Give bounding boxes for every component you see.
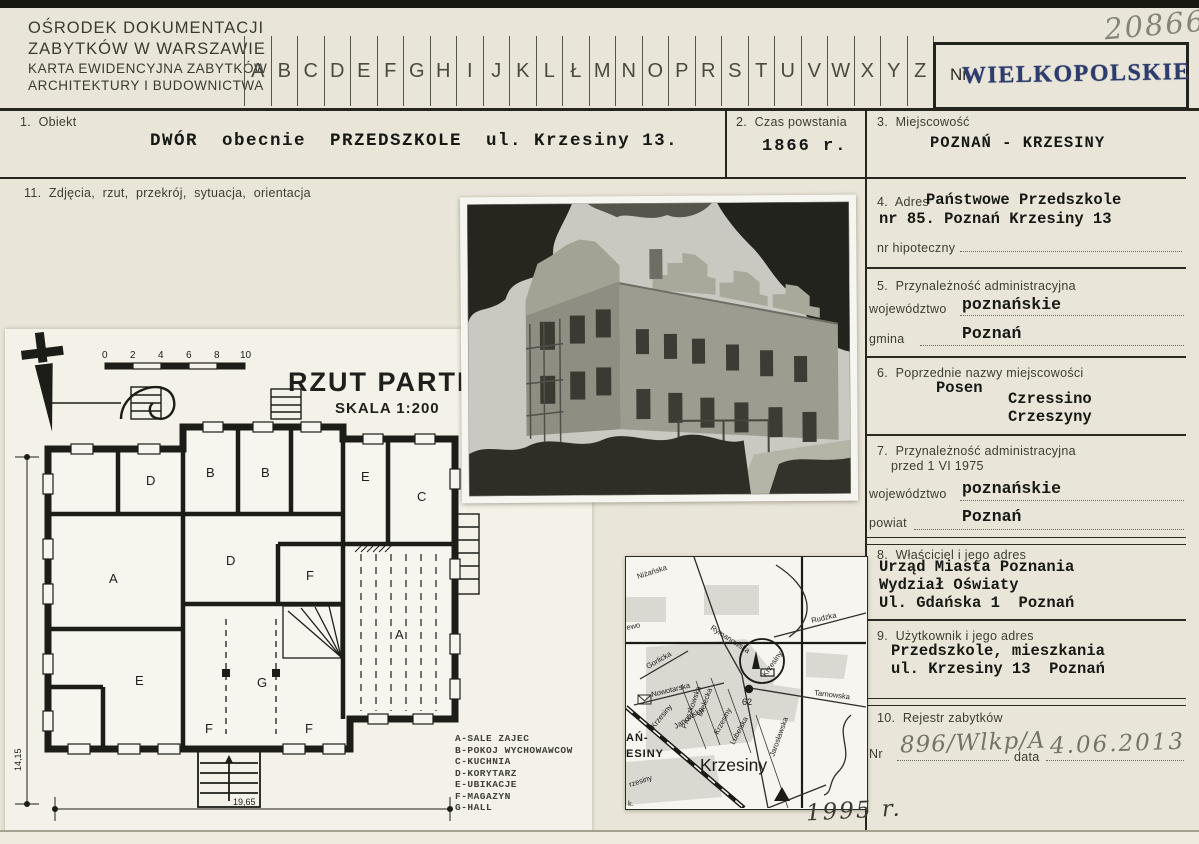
field3-label: 3. Miejscowość xyxy=(877,115,970,129)
svg-text:6: 6 xyxy=(186,350,192,361)
alphabet-letter: U xyxy=(774,36,801,106)
field5-row1-value: poznańskie xyxy=(962,295,1061,314)
building-photo-image xyxy=(467,202,851,497)
plan-legend-line: G-HALL xyxy=(455,802,573,814)
svg-text:4: 4 xyxy=(158,350,164,361)
alphabet-index: ABCDEFGHIJKLŁMNOPRSTUVWXYZ xyxy=(244,36,934,106)
alphabet-letter: E xyxy=(350,36,377,106)
field4-value-line1: Państwowe Przedszkole xyxy=(926,191,1121,209)
alphabet-letter: A xyxy=(244,36,271,106)
alphabet-letter: T xyxy=(748,36,775,106)
map-partial-line2: ESINY xyxy=(626,748,664,760)
card-type-line: KARTA EWIDENCYJNA ZABYTKÓW xyxy=(28,60,267,77)
field6-value2: Czressino xyxy=(1008,390,1092,408)
field5-label: 5. Przynależność administracyjna xyxy=(877,279,1076,293)
alphabet-letter: K xyxy=(509,36,536,106)
card-type-line: ARCHITEKTURY I BUDOWNICTWA xyxy=(28,77,267,94)
field6-value1: Posen xyxy=(936,379,983,397)
svg-text:C: C xyxy=(417,489,426,504)
alphabet-letter: F xyxy=(377,36,404,106)
dotted-line xyxy=(1046,759,1184,761)
field6-label: 6. Poprzednie nazwy miejscowości xyxy=(877,366,1084,380)
field4-value-line2: nr 85. Poznań Krzesiny 13 xyxy=(879,210,1112,228)
alphabet-letter: C xyxy=(297,36,324,106)
field10-nr-label: Nr xyxy=(869,747,883,761)
location-map-image: Niżańska ewo Gorlicka Rymanowska Krzesin… xyxy=(626,557,866,808)
alphabet-letter: I xyxy=(456,36,483,106)
svg-text:2: 2 xyxy=(130,350,136,361)
svg-text:B: B xyxy=(206,465,215,480)
field7-label-line1: 7. Przynależność administracyjna xyxy=(877,444,1076,458)
dimension-width: 19,65 xyxy=(52,797,453,821)
building-plan: D B B E C A D F G A E F F xyxy=(43,387,479,807)
field7-row2-label: powiat xyxy=(869,516,907,530)
field-separator-double xyxy=(866,698,1186,706)
field4-hipoteczny-label: nr hipoteczny xyxy=(877,241,955,255)
alphabet-letter: V xyxy=(801,36,828,106)
alphabet-letter: X xyxy=(854,36,881,106)
scan-edge xyxy=(0,0,1199,8)
location-map: Niżańska ewo Gorlicka Rymanowska Krzesin… xyxy=(625,556,868,810)
field9-label: 9. Użytkownik i jego adres xyxy=(877,629,1034,643)
field6-value3: Crzeszyny xyxy=(1008,408,1092,426)
field4-label: 4. Adres xyxy=(877,195,929,209)
alphabet-letter: H xyxy=(430,36,457,106)
svg-text:F: F xyxy=(306,568,314,583)
field9-line1: Przedszkole, mieszkania xyxy=(891,642,1105,660)
alphabet-letter: P xyxy=(668,36,695,106)
field5-row2-label: gmina xyxy=(869,332,905,346)
alphabet-letter: N xyxy=(615,36,642,106)
voivodeship-stamp-box: Nr WIELKOPOLSKIE xyxy=(933,42,1189,110)
dotted-line xyxy=(897,759,1009,761)
inventory-number-handwritten: 20866 xyxy=(1103,4,1199,47)
field2-value: 1866 r. xyxy=(762,137,847,156)
scale-bar: 0 2 4 6 8 10 xyxy=(102,350,252,369)
header-rule xyxy=(0,108,1199,111)
svg-text:F: F xyxy=(205,721,213,736)
plan-legend-line: A-SALE ZAJEC xyxy=(455,733,573,745)
alphabet-letter: J xyxy=(483,36,510,106)
field1-value: DWÓR obecnie PRZEDSZKOLE ul. Krzesiny 13… xyxy=(150,131,678,151)
plan-legend-line: F-MAGAZYN xyxy=(455,791,573,803)
field7-row2-value: Poznań xyxy=(962,507,1021,526)
field-separator-double xyxy=(866,537,1186,545)
field3-value: POZNAŃ - KRZESINY xyxy=(930,134,1105,152)
field9-line2: ul. Krzesiny 13 Poznań xyxy=(891,660,1105,678)
svg-text:E: E xyxy=(135,673,144,688)
field8-line1: Urząd Miasta Poznania xyxy=(879,558,1074,576)
svg-text:8: 8 xyxy=(214,350,220,361)
heritage-record-card: OŚRODEK DOKUMENTACJI ZABYTKÓW W WARSZAWI… xyxy=(0,0,1199,844)
field7-row1-label: województwo xyxy=(869,487,947,501)
svg-text:B: B xyxy=(261,465,270,480)
field8-line3: Ul. Gdańska 1 Poznań xyxy=(879,594,1074,612)
organization-block: OŚRODEK DOKUMENTACJI ZABYTKÓW W WARSZAWI… xyxy=(28,18,267,95)
svg-text:10: 10 xyxy=(240,350,252,361)
field8-line2: Wydział Oświaty xyxy=(879,576,1019,594)
svg-text:19,65: 19,65 xyxy=(233,797,256,807)
alphabet-letter: M xyxy=(589,36,616,106)
plan-legend-line: E-UBIKACJE xyxy=(455,779,573,791)
field1-label: 1. Obiekt xyxy=(20,115,77,129)
map-town-label: Krzesiny xyxy=(700,755,767,775)
alphabet-letter: B xyxy=(271,36,298,106)
svg-text:k.: k. xyxy=(628,799,634,808)
alphabet-letter: R xyxy=(695,36,722,106)
alphabet-letter: L xyxy=(536,36,563,106)
field10-date-label: data xyxy=(1014,750,1040,764)
dotted-line xyxy=(960,314,1184,316)
map-year-note: 1995 r. xyxy=(805,796,902,827)
svg-text:F: F xyxy=(305,721,313,736)
card-under-edge xyxy=(0,832,1199,844)
map-partial-line1: AŃ- xyxy=(626,731,649,744)
dotted-line xyxy=(914,528,1184,530)
field-separator xyxy=(866,434,1186,436)
svg-text:D: D xyxy=(146,473,155,488)
dotted-line xyxy=(960,499,1184,501)
svg-text:A: A xyxy=(395,627,404,642)
alphabet-letter: W xyxy=(827,36,854,106)
field7-label-line2: przed 1 VI 1975 xyxy=(891,459,984,473)
voivodeship-stamp: WIELKOPOLSKIE xyxy=(962,59,1191,90)
dotted-line xyxy=(920,344,1184,346)
svg-text:A: A xyxy=(109,571,118,586)
field-separator xyxy=(866,356,1186,358)
field5-row2-value: Poznań xyxy=(962,324,1021,343)
plan-legend-line: D-KORYTARZ xyxy=(455,768,573,780)
field-separator xyxy=(866,619,1186,621)
plan-legend-line: B-POKOJ WYCHOWAWCOW xyxy=(455,745,573,757)
field2-label: 2. Czas powstania xyxy=(736,115,847,129)
plan-scale-label: SKALA 1:200 xyxy=(335,400,440,417)
svg-text:14,15: 14,15 xyxy=(13,748,23,771)
north-arrow-icon xyxy=(19,330,73,434)
alphabet-letter: Y xyxy=(880,36,907,106)
bus-stop-dot xyxy=(745,685,753,693)
field-separator xyxy=(866,267,1186,269)
building-photo xyxy=(460,195,858,504)
svg-text:D: D xyxy=(226,553,235,568)
org-name-line: ZABYTKÓW W WARSZAWIE xyxy=(28,39,267,60)
field10-label: 10. Rejestr zabytków xyxy=(877,711,1003,725)
alphabet-letter: Z xyxy=(907,36,935,106)
alphabet-letter: S xyxy=(721,36,748,106)
field11-label: 11. Zdjęcia, rzut, przekrój, sytuacja, o… xyxy=(24,186,311,200)
plan-legend-line: C-KUCHNIA xyxy=(455,756,573,768)
svg-text:G: G xyxy=(257,675,267,690)
field7-row1-value: poznańskie xyxy=(962,479,1061,498)
svg-text:0: 0 xyxy=(102,350,108,361)
alphabet-letter: G xyxy=(403,36,430,106)
org-name-line: OŚRODEK DOKUMENTACJI xyxy=(28,18,267,39)
dotted-line xyxy=(960,250,1182,252)
field10-date-value: 4.06.2013 xyxy=(1050,729,1186,760)
map-stop-number: 62 xyxy=(742,697,752,707)
plan-legend: A-SALE ZAJECB-POKOJ WYCHOWAWCOWC-KUCHNIA… xyxy=(455,733,573,814)
row1-rule xyxy=(0,177,1186,179)
dimension-height: 14,15 xyxy=(13,454,39,807)
alphabet-letter: O xyxy=(642,36,669,106)
alphabet-letter: D xyxy=(324,36,351,106)
field5-row1-label: województwo xyxy=(869,302,947,316)
field2-divider xyxy=(725,108,727,179)
alphabet-letter: Ł xyxy=(562,36,589,106)
svg-text:E: E xyxy=(361,469,370,484)
